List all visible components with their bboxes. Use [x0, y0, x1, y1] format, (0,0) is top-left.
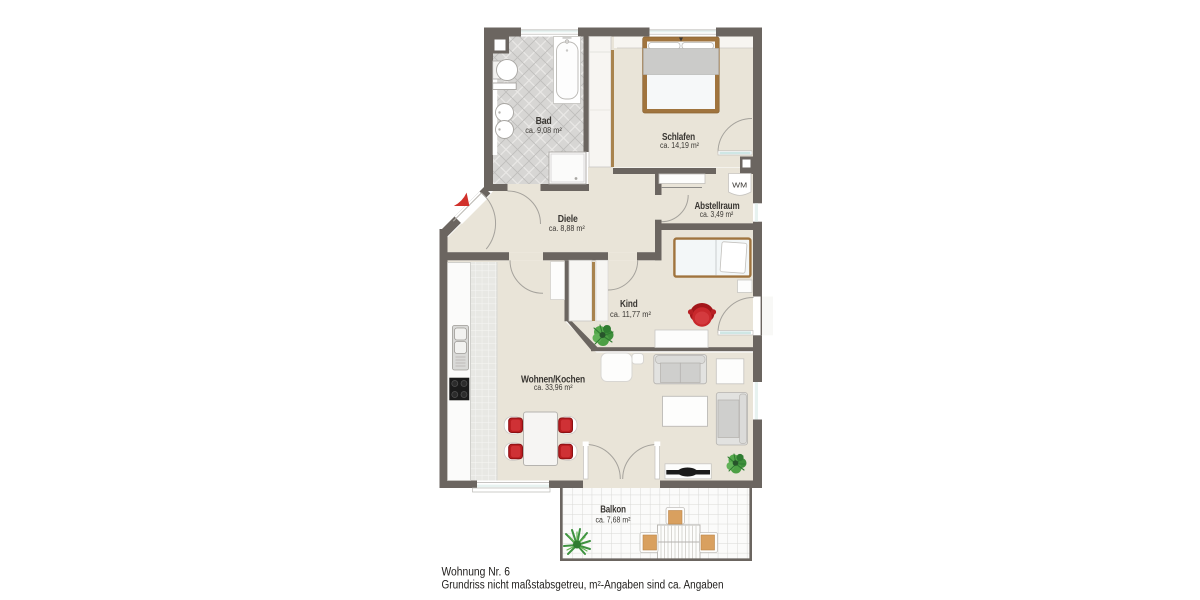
svg-text:ca. 11,77 m²: ca. 11,77 m² — [610, 310, 651, 319]
svg-text:Wohnung Nr. 6: Wohnung Nr. 6 — [442, 567, 511, 579]
svg-text:ca. 3,49 m²: ca. 3,49 m² — [700, 210, 734, 219]
svg-text:Kind: Kind — [620, 299, 638, 310]
svg-text:WM: WM — [732, 180, 747, 189]
svg-text:ca. 9,08 m²: ca. 9,08 m² — [525, 126, 562, 135]
svg-text:ca. 7,68 m²: ca. 7,68 m² — [596, 516, 631, 525]
svg-text:ca. 14,19 m²: ca. 14,19 m² — [660, 141, 699, 150]
svg-text:Balkon: Balkon — [600, 504, 626, 515]
svg-text:ca. 8,88 m²: ca. 8,88 m² — [549, 224, 585, 233]
svg-text:ca. 33,96 m²: ca. 33,96 m² — [534, 383, 573, 392]
svg-text:Grundriss nicht maßstabsgetreu: Grundriss nicht maßstabsgetreu, m²-Angab… — [442, 580, 724, 592]
